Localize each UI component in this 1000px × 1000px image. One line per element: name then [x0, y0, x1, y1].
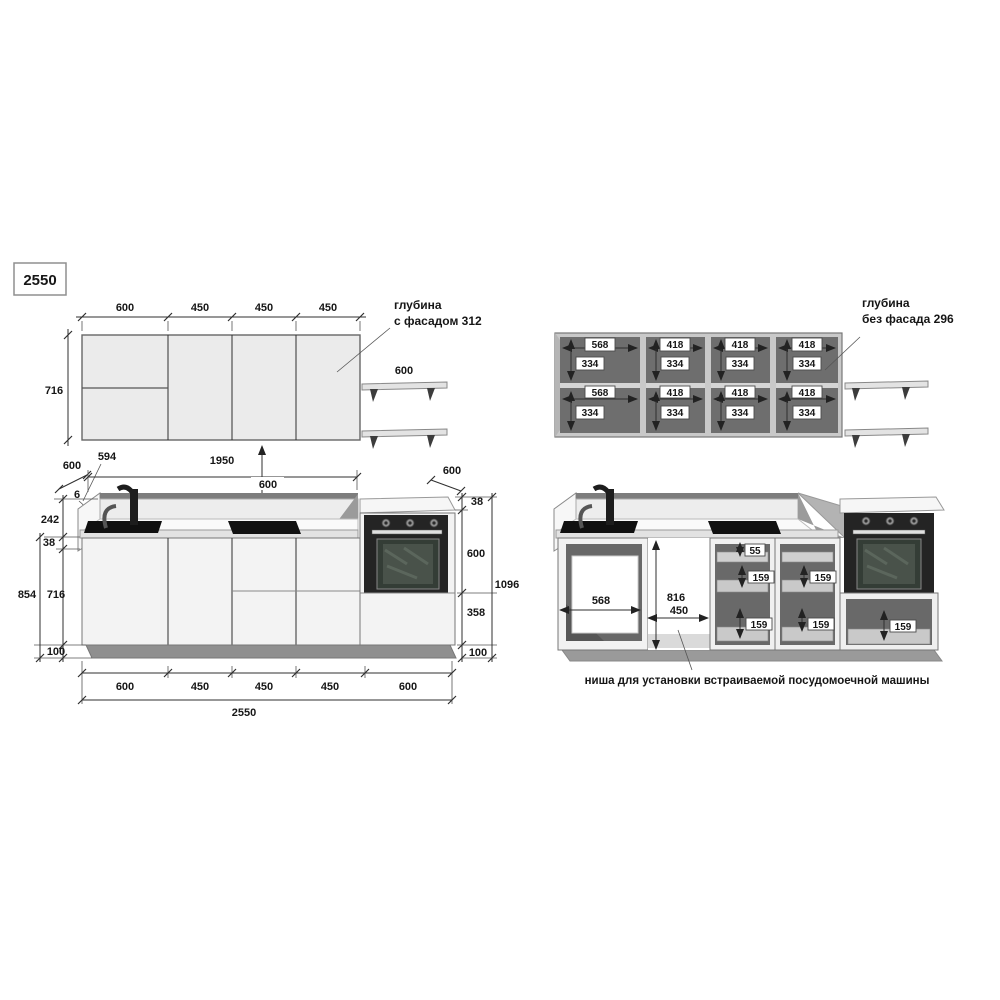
- drawer-label: 159: [751, 620, 768, 631]
- width-label: 568: [592, 340, 609, 351]
- drawer-cabinet-2-open: 159 159: [775, 538, 840, 650]
- drawer-cabinet-1-open: 55 159 159: [710, 538, 775, 650]
- dim-label-gap: 600: [259, 479, 277, 491]
- drawer-label: 159: [813, 620, 830, 631]
- drawer-label: 55: [749, 546, 761, 557]
- backsplash: [100, 499, 358, 519]
- knob-center: [864, 519, 867, 522]
- kitchen-drawing-svg: 2550 600 450 450 450 716 глубина с фасад…: [0, 0, 1000, 1000]
- width-label: 418: [799, 340, 816, 351]
- cooktop-icon: [708, 521, 781, 534]
- dim-label: 450: [255, 681, 273, 693]
- height-label: 334: [582, 408, 599, 419]
- depth-note-line1: глубина: [862, 296, 910, 310]
- dim-label: 450: [255, 302, 273, 314]
- drawer-label: 159: [815, 573, 832, 584]
- backsplash-top-edge: [100, 493, 358, 499]
- niche-floor-strip: [648, 634, 710, 648]
- extension-lines: [82, 321, 360, 331]
- dim-label: 450: [191, 681, 209, 693]
- oven-counter-top: [840, 497, 944, 513]
- drawer-box: [782, 552, 833, 562]
- niche-height-label: 816: [667, 592, 685, 604]
- size-badge: 2550: [14, 263, 66, 295]
- width-label: 418: [799, 388, 816, 399]
- dim-label-plinth: 100: [47, 646, 65, 658]
- bottom-dimension-rows: 600 450 450 450 600 2550: [78, 661, 456, 719]
- dim-label: 600: [116, 681, 134, 693]
- dim-label: 600: [116, 302, 134, 314]
- cooktop-icon: [228, 521, 301, 534]
- width-label: 418: [732, 388, 749, 399]
- oven-counter-top: [360, 497, 455, 513]
- size-badge-label: 2550: [23, 272, 56, 289]
- knob-center: [432, 521, 435, 524]
- dim-label: 450: [191, 302, 209, 314]
- width-label: 418: [667, 340, 684, 351]
- sink-icon: [560, 521, 638, 533]
- depth-note-line1: глубина: [394, 298, 442, 312]
- height-label: 334: [667, 408, 684, 419]
- dim-label-plinth: 100: [469, 647, 487, 659]
- niche-width-label: 450: [670, 605, 688, 617]
- drawer-box: [848, 629, 930, 644]
- plinth: [86, 645, 456, 658]
- sink-width-label: 568: [592, 595, 610, 607]
- dim-label-total-width: 2550: [232, 707, 256, 719]
- sink-cabinet-open: 568: [558, 538, 648, 650]
- dim-label-cabinet: 716: [47, 589, 65, 601]
- dim-line: [59, 475, 87, 489]
- drawer-label: 159: [895, 622, 912, 633]
- upper-open-section-4: 418 334 418 334: [776, 337, 838, 433]
- faucet-spout-icon: [594, 487, 608, 492]
- view-base-cabinets-front: 600 594 1950 600 600 6: [18, 446, 519, 719]
- dim-label-total: 854: [18, 589, 37, 601]
- knob-center: [912, 519, 915, 522]
- shelf-width-label: 600: [395, 365, 413, 377]
- knob-center: [408, 521, 411, 524]
- height-label: 334: [732, 359, 749, 370]
- view-base-cabinets-open: 568 816 450 ниша для установки встраивае…: [554, 487, 944, 687]
- shelf-bracket: [902, 434, 910, 447]
- depth-note-line2: без фасада 296: [862, 312, 954, 326]
- height-label: 334: [799, 359, 816, 370]
- dim-label-counter: 38: [43, 537, 55, 549]
- faucet-spout-icon: [118, 487, 132, 492]
- dim-label: 450: [319, 302, 337, 314]
- oven-icon: [364, 515, 448, 593]
- upper-open-section-2: 418 334 418 334: [646, 337, 705, 433]
- height-label: 334: [799, 408, 816, 419]
- oven-icon: [844, 513, 934, 593]
- width-label: 418: [667, 388, 684, 399]
- drawer-label: 159: [753, 573, 770, 584]
- shelf-bracket: [902, 387, 910, 400]
- faucet-icon: [606, 489, 614, 525]
- shelf-board: [845, 381, 928, 389]
- shelf-bracket: [852, 388, 860, 401]
- view-upper-cabinets-open: 568 334 568 334 418 334 418 334: [555, 296, 954, 448]
- width-label: 568: [592, 388, 609, 399]
- knob-center: [384, 521, 387, 524]
- wall-shelves: [845, 381, 928, 448]
- knob-center: [888, 519, 891, 522]
- height-label: 334: [667, 359, 684, 370]
- kitchen-technical-drawing-page: 2550 600 450 450 450 716 глубина с фасад…: [0, 0, 1000, 1000]
- upper-open-section-1: 568 334 568 334: [560, 337, 640, 433]
- shelf-board: [845, 428, 928, 436]
- dim-label-right-depth: 600: [443, 465, 461, 477]
- dim-label: 600: [399, 681, 417, 693]
- wall-shelves: 600: [362, 365, 447, 449]
- frame-side: [555, 333, 560, 437]
- oven-cabinet-open: 159: [840, 497, 944, 650]
- view-upper-cabinets-front: 600 450 450 450 716 глубина с фасадом 31…: [45, 298, 482, 449]
- dim-label-splash: 242: [41, 514, 59, 526]
- height-label: 334: [732, 408, 749, 419]
- depth-note-line2: с фасадом 312: [394, 314, 482, 328]
- dim-label-run: 1950: [210, 455, 234, 467]
- upper-open-section-3: 418 334 418 334: [711, 337, 770, 433]
- oven-handle: [853, 530, 925, 534]
- shelf-bracket: [427, 388, 435, 401]
- dim-label-total: 1096: [495, 579, 519, 591]
- shelf-bracket: [852, 435, 860, 448]
- dim-label-oven: 600: [467, 548, 485, 560]
- shelf-bracket: [370, 389, 378, 402]
- dim-label-counter: 38: [471, 496, 483, 508]
- dim-label-offset: 594: [98, 451, 117, 463]
- dim-label-height: 716: [45, 385, 63, 397]
- dim-line: [431, 480, 461, 491]
- width-label: 418: [732, 340, 749, 351]
- right-dimension-stack: 38 600 358 100 1096: [455, 493, 519, 662]
- shelf-bracket: [427, 435, 435, 448]
- plinth: [562, 650, 942, 661]
- faucet-icon: [130, 489, 138, 525]
- dim-label: 450: [321, 681, 339, 693]
- height-label: 334: [582, 359, 599, 370]
- dim-label-left-depth: 600: [63, 460, 81, 472]
- sink-icon: [84, 521, 162, 533]
- oven-handle: [372, 530, 442, 534]
- shelf-bracket: [370, 436, 378, 449]
- niche-note: ниша для установки встраиваемой посудомо…: [585, 675, 930, 687]
- extension-lines: [455, 497, 497, 658]
- dim-label-drawer: 358: [467, 607, 485, 619]
